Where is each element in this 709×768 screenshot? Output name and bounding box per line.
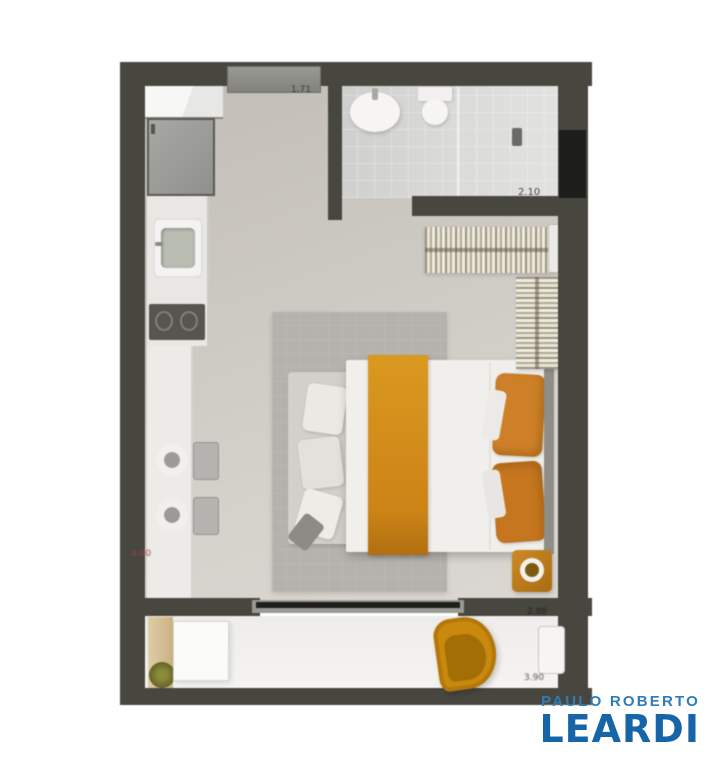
- dining-stool: [193, 442, 219, 480]
- wall-top: [120, 62, 592, 86]
- kitchen-sink-basin: [161, 228, 195, 268]
- place-setting: [156, 499, 188, 531]
- shower-glass-divider: [457, 87, 459, 196]
- wardrobe-rack-horizontal: [425, 227, 556, 273]
- dimension-label-balcony-length: 3.90: [524, 674, 544, 683]
- balcony-table: [173, 621, 229, 681]
- dimension-label-entry: 1.71: [291, 86, 311, 95]
- sofa-cushion: [297, 436, 345, 491]
- floor-plan: 1.71 2.10 4.00 2.88 3.90: [0, 0, 709, 768]
- brand-name-main: LEARDI: [508, 710, 700, 748]
- dimension-label-balcony-depth: 2.88: [527, 608, 547, 617]
- bathroom-faucet: [372, 88, 378, 100]
- floor-plan-image: 1.71 2.10 4.00 2.88 3.90 PAULO ROBERTO L…: [0, 0, 709, 768]
- cooktop-burner: [180, 311, 198, 331]
- bed-runner-blanket: [368, 355, 428, 555]
- wall-balcony-right: [458, 598, 592, 616]
- balcony-ac-unit: [538, 626, 565, 674]
- potted-plant: [149, 662, 175, 688]
- place-setting: [156, 444, 188, 476]
- wall-bathroom-bottom: [412, 196, 558, 216]
- shower-column: [512, 128, 522, 146]
- brand-logo: PAULO ROBERTO LEARDI: [508, 694, 700, 748]
- bed-headboard: [544, 358, 554, 554]
- table-lamp: [520, 558, 544, 582]
- kitchen-window: [143, 85, 223, 119]
- cooktop-burner: [155, 311, 173, 331]
- balcony-sliding-door: [256, 602, 460, 608]
- sofa-cushion: [302, 382, 348, 435]
- wall-balcony-left: [120, 598, 260, 616]
- refrigerator-handle: [151, 124, 155, 134]
- wall-bathroom-left: [328, 62, 342, 220]
- refrigerator: [147, 118, 215, 196]
- right-wall-shaft: [559, 130, 586, 198]
- wardrobe-rack-vertical: [516, 277, 558, 369]
- kitchen-faucet: [155, 242, 163, 246]
- toilet-bowl: [422, 99, 448, 125]
- dining-stool: [193, 497, 219, 535]
- dimension-label-kitchen: 4.00: [131, 550, 151, 559]
- dimension-label-bathroom: 2.10: [518, 188, 540, 198]
